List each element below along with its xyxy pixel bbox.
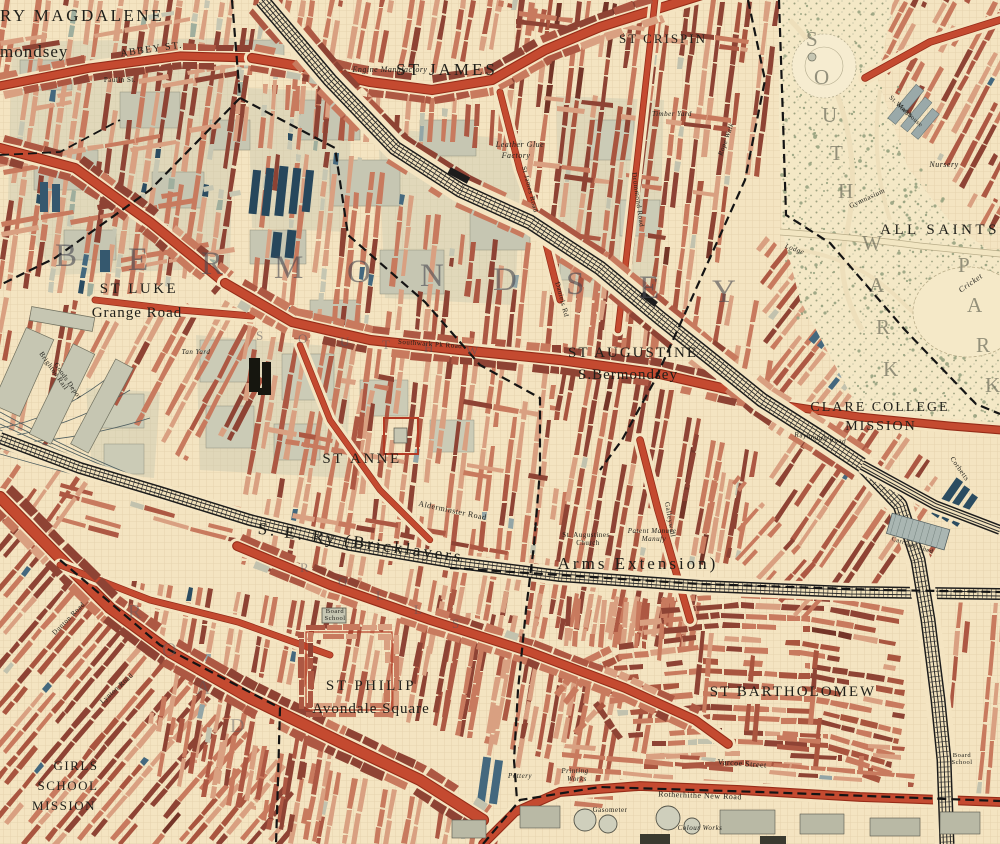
svg-text:B: B — [55, 238, 77, 274]
svg-text:O: O — [162, 639, 176, 661]
svg-text:H: H — [838, 179, 853, 203]
svg-text:Nursery: Nursery — [928, 160, 958, 169]
svg-text:A: A — [196, 677, 211, 699]
svg-text:K: K — [985, 373, 1000, 397]
svg-text:SCHOOL: SCHOOL — [37, 778, 98, 793]
svg-text:Colour Works: Colour Works — [678, 824, 723, 832]
svg-text:Y: Y — [712, 274, 736, 310]
svg-text:Engine Manufactory: Engine Manufactory — [352, 65, 428, 74]
svg-text:N: N — [420, 258, 444, 294]
svg-text:A: A — [869, 273, 885, 297]
svg-text:U: U — [822, 103, 837, 127]
svg-text:Board: Board — [953, 752, 972, 759]
svg-text:School: School — [951, 759, 972, 766]
svg-text:ST ANNE: ST ANNE — [322, 451, 401, 467]
svg-text:ST LUKE: ST LUKE — [100, 281, 178, 297]
svg-text:ST PHILIP: ST PHILIP — [326, 678, 416, 694]
svg-text:A: A — [967, 293, 983, 317]
svg-text:S: S — [256, 328, 263, 343]
svg-text:P: P — [958, 253, 970, 277]
svg-text:Arms Extension): Arms Extension) — [558, 554, 719, 573]
svg-text:Printing: Printing — [560, 767, 588, 775]
svg-text:Gasometer: Gasometer — [593, 806, 628, 814]
svg-text:Timber Yard: Timber Yard — [652, 110, 692, 118]
svg-text:MISSION: MISSION — [845, 419, 917, 434]
svg-text:Paulin St.: Paulin St. — [104, 76, 136, 84]
svg-text:O: O — [338, 574, 347, 589]
svg-text:D: D — [493, 262, 517, 298]
svg-text:Factory: Factory — [501, 151, 531, 160]
svg-text:R: R — [876, 315, 890, 339]
svg-text:O: O — [347, 254, 371, 290]
svg-text:R: R — [300, 560, 309, 575]
svg-text:M: M — [274, 250, 303, 286]
svg-text:W: W — [862, 231, 882, 255]
svg-text:E: E — [128, 242, 148, 278]
svg-text:L: L — [414, 602, 422, 617]
svg-text:mondsey: mondsey — [0, 42, 68, 61]
svg-text:S: S — [452, 616, 459, 631]
svg-text:E: E — [639, 270, 659, 306]
svg-text:O: O — [814, 65, 829, 89]
svg-text:Grange Road: Grange Road — [92, 305, 183, 321]
svg-text:St. Augustines: St. Augustines — [562, 531, 609, 539]
svg-text:Avondale Square: Avondale Square — [312, 701, 430, 717]
svg-text:T: T — [382, 337, 390, 352]
svg-text:Tan Yard: Tan Yard — [182, 348, 211, 356]
svg-text:S.Bermondsey: S.Bermondsey — [578, 367, 678, 383]
svg-text:T: T — [830, 141, 843, 165]
svg-text:O: O — [298, 331, 307, 346]
svg-text:R: R — [976, 333, 990, 357]
svg-text:MISSION: MISSION — [32, 798, 96, 813]
svg-text:D: D — [230, 715, 244, 737]
svg-text:GIRLS: GIRLS — [53, 758, 98, 773]
svg-text:R: R — [201, 246, 223, 282]
svg-text:CLARE COLLEGE: CLARE COLLEGE — [810, 400, 949, 415]
svg-text:School: School — [324, 615, 345, 622]
svg-text:ST BARTHOLOMEW: ST BARTHOLOMEW — [710, 684, 876, 700]
svg-text:Leather Glue: Leather Glue — [495, 140, 544, 149]
svg-text:S: S — [566, 266, 584, 302]
svg-text:W: W — [466, 343, 479, 358]
svg-text:R: R — [128, 601, 142, 623]
svg-text:Pottery: Pottery — [507, 772, 532, 780]
svg-text:K: K — [883, 357, 898, 381]
svg-text:ST AUGUSTINE: ST AUGUSTINE — [568, 345, 698, 361]
svg-text:ALL SAINTS: ALL SAINTS — [880, 222, 1000, 238]
svg-text:S: S — [806, 27, 818, 51]
svg-text:ST CRISPIN: ST CRISPIN — [619, 31, 707, 46]
svg-text:Works: Works — [567, 775, 587, 783]
svg-text:U: U — [340, 334, 350, 349]
svg-text:Board: Board — [326, 608, 345, 615]
svg-text:L: L — [376, 588, 384, 603]
svg-text:RY MAGDALENE: RY MAGDALENE — [0, 6, 164, 25]
svg-text:Manufy: Manufy — [641, 535, 667, 543]
svg-text:Church: Church — [576, 539, 600, 547]
